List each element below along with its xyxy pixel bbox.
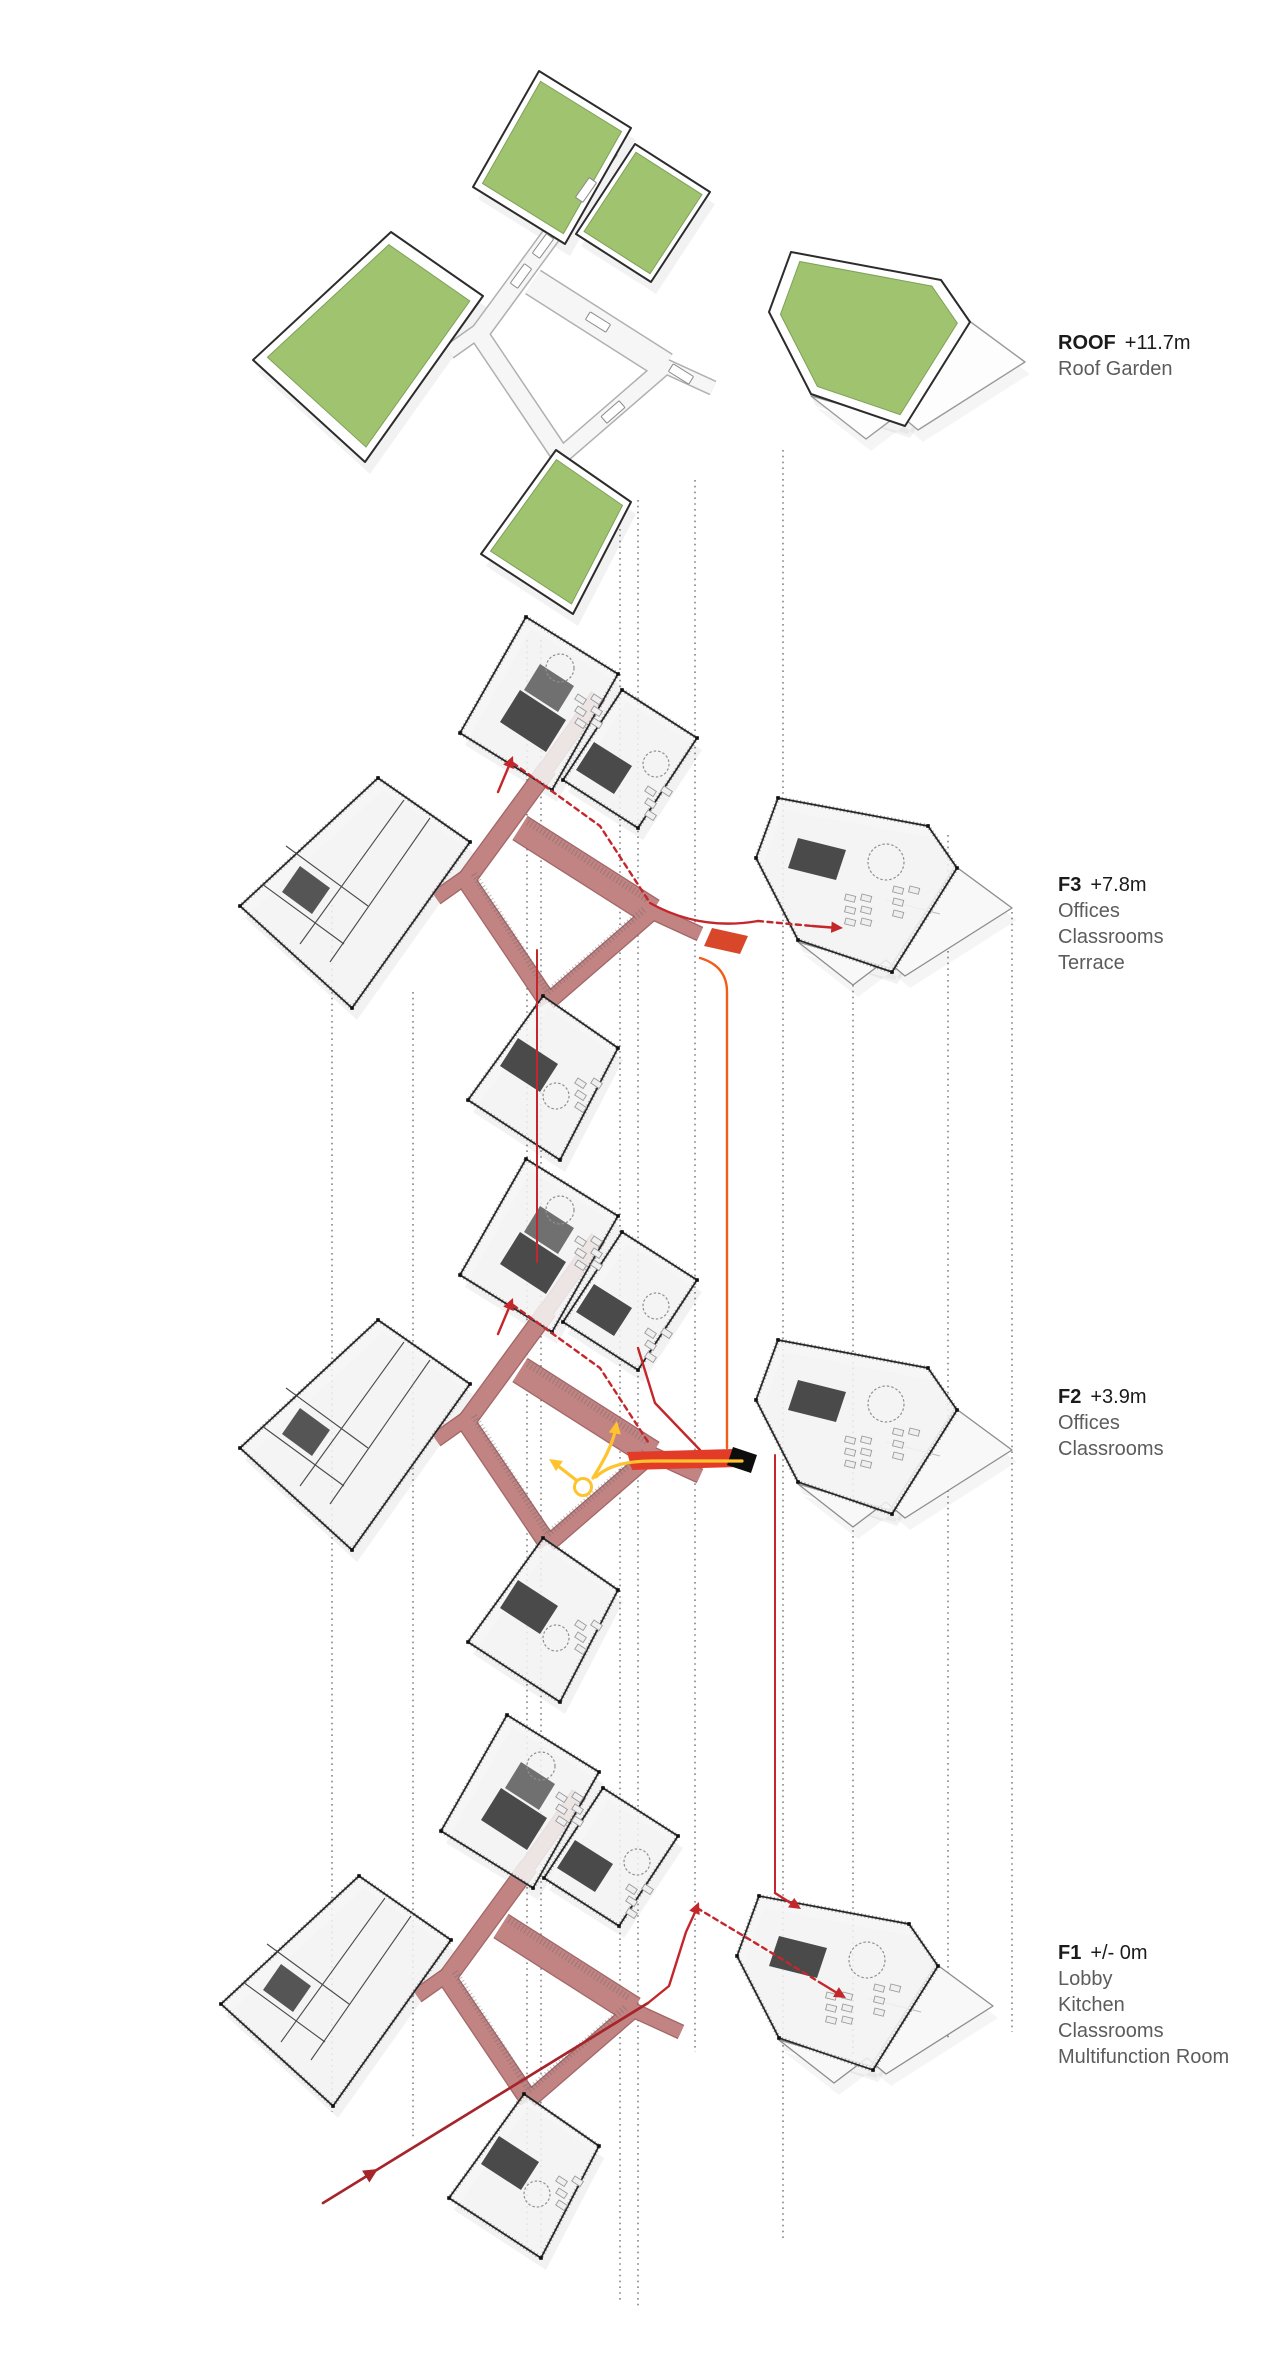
f3-stair-down [704, 928, 748, 954]
level-code: F2 [1058, 1386, 1081, 1408]
level-title: ROOF+11.7m [1058, 330, 1191, 356]
f3-plan [238, 615, 1017, 1172]
level-label-roof: ROOF+11.7m Roof Garden [1058, 330, 1191, 382]
level-label-f3: F3+7.8m Offices Classrooms Terrace [1058, 872, 1164, 976]
exploded-axonometric-diagram: ROOF+11.7m Roof Garden F3+7.8m Offices C… [0, 0, 1280, 2356]
level-program: Kitchen [1058, 1992, 1229, 2018]
level-title: F3+7.8m [1058, 872, 1164, 898]
level-program: Offices [1058, 898, 1164, 924]
level-program: Multifunction Room [1058, 2044, 1229, 2070]
level-code: ROOF [1058, 332, 1116, 354]
level-title: F1+/- 0m [1058, 1940, 1229, 1966]
level-title: F2+3.9m [1058, 1384, 1164, 1410]
level-elevation: +/- 0m [1090, 1942, 1147, 1964]
level-elevation: +7.8m [1090, 874, 1146, 896]
f2-plan [238, 1157, 1017, 1714]
level-program: Roof Garden [1058, 356, 1191, 382]
roof-plan [253, 71, 1030, 626]
f1-plan [219, 1713, 998, 2270]
arrowhead [362, 2169, 378, 2182]
f1-lobby-path [648, 1908, 697, 2003]
level-program: Terrace [1058, 950, 1164, 976]
level-label-f1: F1+/- 0m Lobby Kitchen Classrooms Multif… [1058, 1940, 1229, 2070]
level-code: F1 [1058, 1942, 1081, 1964]
level-program: Classrooms [1058, 924, 1164, 950]
level-code: F3 [1058, 874, 1081, 896]
level-program: Lobby [1058, 1966, 1229, 1992]
level-elevation: +11.7m [1125, 332, 1191, 354]
level-label-f2: F2+3.9m Offices Classrooms [1058, 1384, 1164, 1462]
level-program: Classrooms [1058, 1436, 1164, 1462]
level-elevation: +3.9m [1090, 1386, 1146, 1408]
vertical-circulation-orange [700, 958, 727, 1448]
level-program: Classrooms [1058, 2018, 1229, 2044]
level-program: Offices [1058, 1410, 1164, 1436]
